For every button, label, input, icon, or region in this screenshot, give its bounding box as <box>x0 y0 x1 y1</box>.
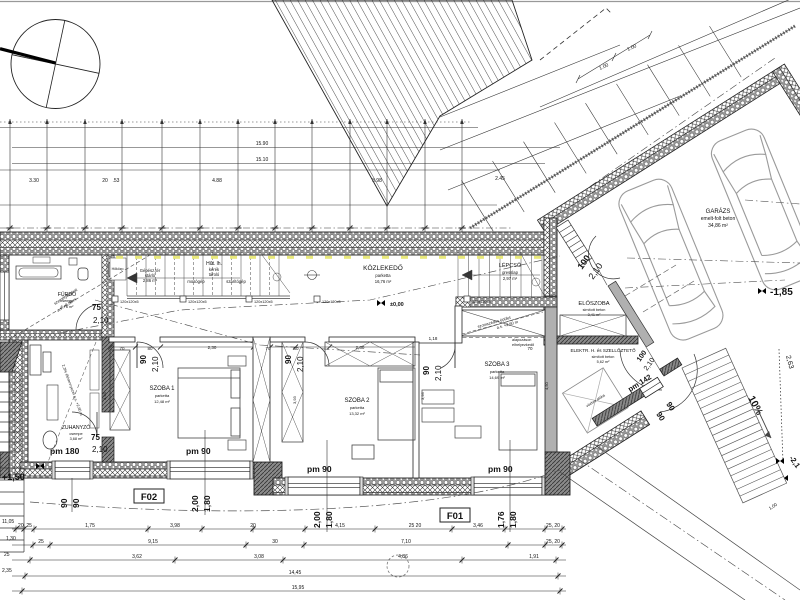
svg-text:90: 90 <box>284 355 293 364</box>
svg-text:2,86 m²: 2,86 m² <box>143 278 158 283</box>
svg-text:1,80: 1,80 <box>202 495 212 512</box>
svg-text:30: 30 <box>272 539 278 545</box>
svg-text:4,50: 4,50 <box>544 381 549 390</box>
svg-text:pm 180: pm 180 <box>50 446 80 456</box>
svg-text:4.88: 4.88 <box>212 178 222 184</box>
svg-text:3,68 m²: 3,68 m² <box>70 437 84 441</box>
svg-text:90: 90 <box>59 498 69 508</box>
svg-text:-1,85: -1,85 <box>770 287 793 298</box>
svg-text:SZOBA 1: SZOBA 1 <box>149 386 175 392</box>
svg-text:3,93: 3,93 <box>102 391 107 400</box>
svg-text:2,00: 2,00 <box>190 495 200 512</box>
svg-text:simított beton: simított beton <box>592 355 615 359</box>
svg-text:2,35: 2,35 <box>2 568 12 574</box>
svg-text:15,95: 15,95 <box>292 585 305 591</box>
svg-text:parketta: parketta <box>155 393 170 398</box>
svg-text:1,76: 1,76 <box>496 511 506 528</box>
svg-text:parketta: parketta <box>350 405 365 410</box>
svg-text:gresslap: gresslap <box>502 270 518 275</box>
svg-text:LÉPCSŐ: LÉPCSŐ <box>499 262 522 269</box>
svg-text:120x120x5: 120x120x5 <box>188 300 207 304</box>
svg-text:120x120x5: 120x120x5 <box>254 300 273 304</box>
svg-text:GARÁZS: GARÁZS <box>706 208 731 215</box>
svg-text:14,45: 14,45 <box>289 570 302 576</box>
svg-text:Hőközp.: Hőközp. <box>112 267 125 271</box>
svg-text:2,10: 2,10 <box>151 356 160 372</box>
svg-text:15.10: 15.10 <box>256 157 269 163</box>
svg-text:3,62: 3,62 <box>132 554 142 560</box>
svg-text:20: 20 <box>102 178 108 184</box>
svg-text:emelt-folt beton: emelt-folt beton <box>701 216 736 222</box>
svg-text:13,32 m²: 13,32 m² <box>349 411 365 416</box>
svg-text:15.90: 15.90 <box>256 141 269 147</box>
svg-text:3,93: 3,93 <box>420 391 425 400</box>
svg-text:20: 20 <box>250 523 256 529</box>
svg-text:4,86: 4,86 <box>398 554 408 560</box>
svg-text:±0,00: ±0,00 <box>390 302 404 308</box>
svg-text:11,05: 11,05 <box>2 519 14 525</box>
svg-text:1,18: 1,18 <box>429 336 438 341</box>
svg-text:25, 20: 25, 20 <box>546 539 560 545</box>
svg-text:pm 90: pm 90 <box>186 446 211 456</box>
svg-text:F01: F01 <box>447 511 464 522</box>
svg-text:4,15: 4,15 <box>335 523 345 529</box>
svg-text:2,10: 2,10 <box>434 365 443 381</box>
svg-text:2,00: 2,00 <box>312 511 322 528</box>
svg-text:1,80: 1,80 <box>324 511 334 528</box>
svg-text:1,80: 1,80 <box>508 511 518 528</box>
svg-text:1,30: 1,30 <box>6 536 16 542</box>
svg-text:3,08: 3,08 <box>254 554 264 560</box>
svg-text:25: 25 <box>4 552 10 558</box>
svg-text:+1,50: +1,50 <box>2 472 25 482</box>
svg-text:parketta: parketta <box>490 369 505 374</box>
svg-text:90: 90 <box>422 366 431 375</box>
svg-text:90: 90 <box>71 498 81 508</box>
svg-text:2,10: 2,10 <box>92 445 108 454</box>
svg-text:SZOBA 2: SZOBA 2 <box>344 398 370 404</box>
svg-text:szárítógép: szárítógép <box>226 279 246 284</box>
svg-text:5,62 m²: 5,62 m² <box>597 360 611 364</box>
svg-text:1,91: 1,91 <box>529 554 539 560</box>
svg-text:25, 20: 25, 20 <box>546 523 560 529</box>
svg-text:.53: .53 <box>113 178 120 184</box>
svg-text:2,10: 2,10 <box>93 316 109 325</box>
svg-text:90: 90 <box>139 355 148 364</box>
svg-text:3,93: 3,93 <box>292 395 297 404</box>
svg-text:pm 90: pm 90 <box>307 464 332 474</box>
svg-text:70: 70 <box>527 346 533 351</box>
svg-text:20, 25: 20, 25 <box>18 523 32 529</box>
svg-text:SZOBA 3: SZOBA 3 <box>484 362 510 368</box>
svg-text:2,30: 2,30 <box>208 345 217 350</box>
svg-text:3,46: 3,46 <box>473 523 483 529</box>
svg-text:pm 90: pm 90 <box>488 464 513 474</box>
svg-text:tároló: tároló <box>209 272 220 277</box>
svg-text:parketta: parketta <box>375 273 391 278</box>
svg-text:12,48 m²: 12,48 m² <box>154 399 170 404</box>
svg-text:25 20: 25 20 <box>409 523 422 529</box>
svg-text:75: 75 <box>92 303 101 312</box>
svg-text:7,10: 7,10 <box>401 539 411 545</box>
svg-text:F02: F02 <box>141 492 157 503</box>
svg-text:mosógép: mosógép <box>187 279 205 284</box>
svg-text:120x120x5: 120x120x5 <box>322 300 341 304</box>
svg-text:ELŐSZOBA: ELŐSZOBA <box>578 300 609 307</box>
svg-text:ZUHANYZÓ: ZUHANYZÓ <box>62 424 91 431</box>
svg-text:1,75: 1,75 <box>85 523 95 529</box>
svg-text:16,76 m²: 16,76 m² <box>375 279 392 284</box>
svg-text:3,98: 3,98 <box>170 523 180 529</box>
svg-text:KÖZLEKEDŐ: KÖZLEKEDŐ <box>363 263 403 272</box>
svg-text:25: 25 <box>38 539 44 545</box>
svg-text:ELEKTR. H. és SZELLŐZTETŐ: ELEKTR. H. és SZELLŐZTETŐ <box>570 347 636 353</box>
svg-text:120x120x5: 120x120x5 <box>472 300 491 304</box>
svg-text:3.30: 3.30 <box>29 178 39 184</box>
svg-text:alapozáson: alapozáson <box>512 338 531 342</box>
svg-text:9,15: 9,15 <box>148 539 158 545</box>
svg-text:simított beton: simított beton <box>583 308 606 312</box>
svg-text:34,86 m²: 34,86 m² <box>708 223 728 229</box>
svg-text:2,10: 2,10 <box>296 356 305 372</box>
svg-text:2,97 m²: 2,97 m² <box>503 276 518 281</box>
svg-text:120x120x5: 120x120x5 <box>120 300 139 304</box>
svg-text:csempe: csempe <box>69 432 82 436</box>
svg-text:2,30: 2,30 <box>356 345 365 350</box>
svg-text:14,69 m²: 14,69 m² <box>489 375 505 380</box>
svg-text:75: 75 <box>91 433 100 442</box>
